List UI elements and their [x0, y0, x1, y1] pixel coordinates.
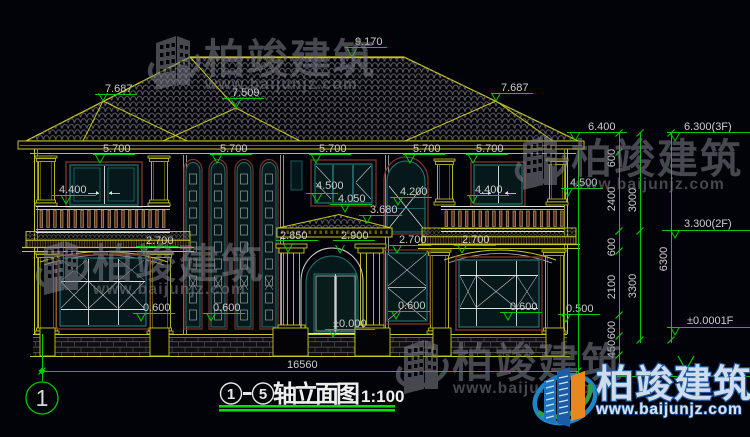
svg-text:5.700: 5.700 — [103, 143, 131, 155]
svg-text:4.500: 4.500 — [316, 180, 344, 192]
svg-text:0.600: 0.600 — [213, 302, 241, 314]
svg-text:5.700: 5.700 — [319, 143, 347, 155]
svg-text:16560: 16560 — [287, 359, 318, 371]
svg-text:±0.0001F: ±0.0001F — [687, 315, 734, 327]
svg-text:2100: 2100 — [606, 275, 618, 299]
svg-text:4.400: 4.400 — [59, 184, 87, 196]
svg-text:0.600: 0.600 — [143, 302, 171, 314]
svg-text:0.600: 0.600 — [398, 300, 426, 312]
svg-text:7.687: 7.687 — [105, 83, 133, 95]
svg-text:6300: 6300 — [658, 247, 670, 271]
svg-text:柏竣建筑: 柏竣建筑 — [596, 364, 750, 406]
svg-text:600: 600 — [606, 321, 618, 339]
svg-text:3300: 3300 — [627, 274, 639, 298]
svg-text:www.baijunjz.com: www.baijunjz.com — [595, 401, 743, 418]
svg-text:600: 600 — [606, 238, 618, 256]
svg-text:7.687: 7.687 — [501, 82, 529, 94]
svg-text:2.700: 2.700 — [462, 234, 490, 246]
svg-text:1:100: 1:100 — [361, 387, 404, 406]
svg-text:2.700: 2.700 — [399, 234, 427, 246]
svg-text:3.680: 3.680 — [370, 204, 398, 216]
svg-text:4.200: 4.200 — [400, 186, 428, 198]
svg-text:1: 1 — [36, 385, 49, 411]
svg-text:6.400: 6.400 — [588, 121, 616, 133]
svg-text:0.500: 0.500 — [566, 303, 594, 315]
svg-text:5.700: 5.700 — [476, 143, 504, 155]
svg-text:轴立面图: 轴立面图 — [273, 380, 359, 408]
svg-text:0.600: 0.600 — [510, 301, 538, 313]
svg-text:5.700: 5.700 — [220, 143, 248, 155]
svg-text:6.300(3F): 6.300(3F) — [684, 121, 732, 133]
svg-text:1: 1 — [227, 386, 235, 403]
svg-text:±0.000: ±0.000 — [333, 318, 367, 330]
svg-text:5.700: 5.700 — [413, 143, 441, 155]
svg-text:5: 5 — [259, 386, 267, 403]
svg-text:4.400: 4.400 — [475, 184, 503, 196]
svg-text:3.300(2F): 3.300(2F) — [684, 218, 732, 230]
svg-text:4.050: 4.050 — [338, 193, 366, 205]
